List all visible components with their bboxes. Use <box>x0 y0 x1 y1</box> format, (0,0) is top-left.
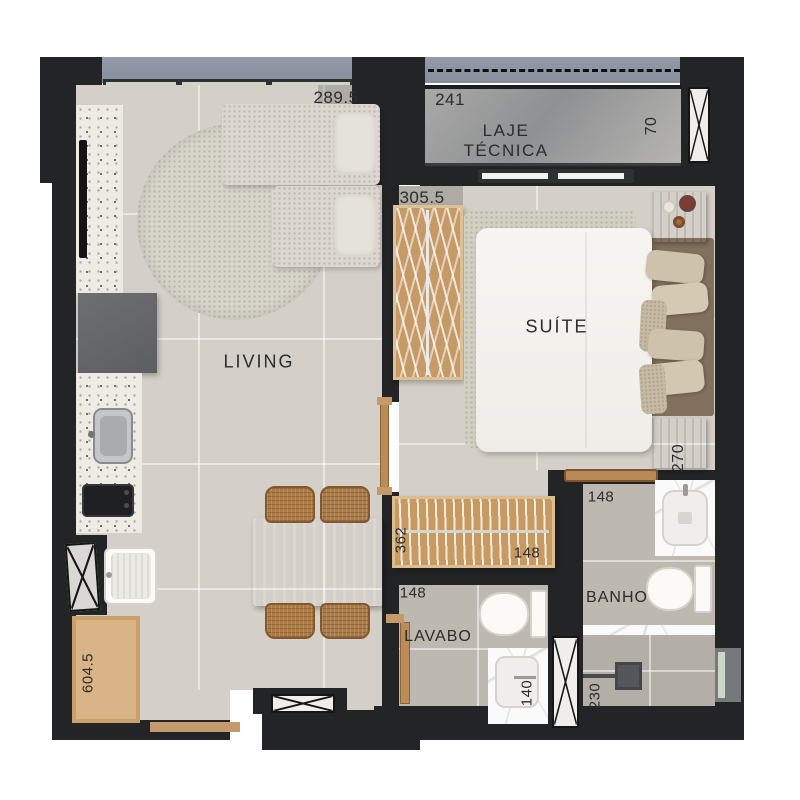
toilet-bowl <box>646 567 694 611</box>
dining-chair <box>320 603 370 639</box>
room-label-suite: SUÍTE <box>525 317 588 338</box>
cooktop-knob <box>124 503 129 508</box>
toilet-tank <box>694 565 712 613</box>
bed-pillow-lumbar <box>638 363 667 415</box>
door-threshold <box>150 722 240 732</box>
banho-sink-drain <box>678 512 692 524</box>
plant-decor-icon <box>673 216 685 228</box>
wall-top-left-corner <box>40 85 52 183</box>
suite-door-jamb <box>377 397 392 405</box>
shower-head <box>615 662 642 690</box>
room-label-banho: BANHO <box>586 589 648 607</box>
room-label-lavabo: LAVABO <box>404 628 472 646</box>
room-label-laje-line2: TÉCNICA <box>463 141 548 161</box>
dim-bench-depth: 148 <box>514 545 541 562</box>
dining-table <box>253 518 383 606</box>
faucet-icon <box>88 431 95 438</box>
floor-grout-line <box>583 670 715 672</box>
bed-duvet <box>476 228 652 452</box>
sofa-cushion <box>334 112 376 174</box>
suite-window-glass <box>558 173 624 179</box>
dim-banho-width: 148 <box>588 489 615 506</box>
dim-nightstand-depth: 270 <box>670 444 688 472</box>
wall-bench-lavabo <box>392 565 555 585</box>
dim-suite-width: 305.5 <box>399 188 444 208</box>
cooktop <box>82 484 134 517</box>
dim-laje-depth: 70 <box>643 117 661 136</box>
floor-grout-line <box>583 560 715 562</box>
shower-threshold <box>583 625 715 635</box>
suite-door-leaf <box>380 404 389 492</box>
wall-entry-vestibule <box>262 710 420 750</box>
dim-living-width: 289.5 <box>313 88 358 108</box>
dim-laje-width: 241 <box>435 90 465 110</box>
shaft-x-icon <box>271 694 335 713</box>
dining-chair <box>265 486 315 523</box>
toilet-tank <box>530 590 547 638</box>
faucet-icon <box>683 484 688 496</box>
bench-center-line <box>398 530 549 533</box>
dim-lavabo-counter: 140 <box>519 680 536 707</box>
room-label-laje-line1: LAJE <box>483 121 530 141</box>
floor-grout-line <box>477 585 479 706</box>
dining-chair <box>320 486 370 523</box>
kitchen-island-cabinet <box>78 293 157 373</box>
railing-dashed-line <box>428 69 680 72</box>
faucet-icon <box>514 676 536 679</box>
cooktop-knob <box>124 490 129 495</box>
cup-decor-icon <box>662 200 676 214</box>
lavabo-door-jamb <box>386 614 404 623</box>
sofa-cushion <box>334 194 376 256</box>
bed-pillow <box>645 249 706 285</box>
suite-window-glass <box>482 173 548 179</box>
shaft-x-icon <box>552 636 579 728</box>
dining-chair <box>265 603 315 639</box>
duvet-fold-line <box>585 232 587 448</box>
kitchen-sink-basin <box>100 416 127 456</box>
suite-door-jamb <box>377 487 392 495</box>
towel-rail <box>564 469 658 482</box>
toilet-bowl <box>479 592 529 636</box>
dim-lavabo-width: 148 <box>400 585 427 602</box>
floor-plan: 289.5 241 70 LAJE TÉCNICA 305.5 SUÍTE LI… <box>0 0 800 800</box>
faucet-icon <box>106 572 112 578</box>
dim-shower-width: 230 <box>587 683 604 710</box>
tv-panel <box>79 140 87 258</box>
dim-kitchen-run: 604.5 <box>80 653 97 693</box>
plant-decor-icon <box>681 197 694 210</box>
wardrobe-center-rail <box>426 210 429 375</box>
shaft-x-icon <box>65 542 101 612</box>
laundry-tub-basin <box>111 553 151 599</box>
bed-pillow <box>647 328 705 362</box>
shaft-x-icon <box>688 87 710 163</box>
dim-bench-length: 362 <box>393 527 410 554</box>
banho-window-glass <box>718 652 725 698</box>
room-label-living: LIVING <box>223 352 294 373</box>
